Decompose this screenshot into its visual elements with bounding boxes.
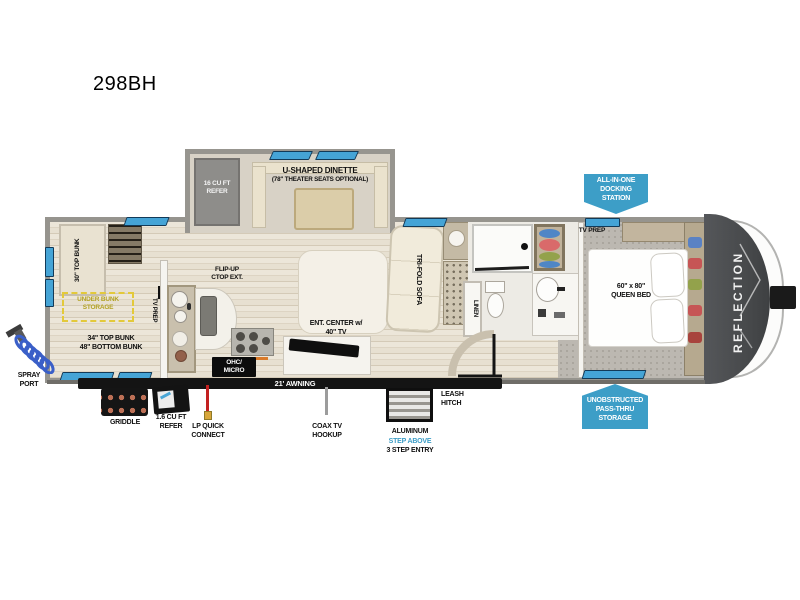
spray-port-icon bbox=[4, 320, 60, 374]
lamp-icon bbox=[448, 230, 465, 247]
clothes-icon bbox=[688, 279, 702, 290]
sink-icon bbox=[171, 291, 188, 308]
vanity-accessory-icon bbox=[538, 309, 546, 317]
lp-connect-icon bbox=[206, 385, 209, 414]
label-flip-up: FLIP-UP CTOP EXT. bbox=[194, 266, 260, 282]
label-dinette: U-SHAPED DINETTE bbox=[246, 166, 394, 176]
window-icon bbox=[45, 279, 54, 307]
clothes-icon bbox=[688, 258, 702, 269]
burner-icon bbox=[236, 332, 245, 341]
lp-connect-tip-icon bbox=[204, 411, 212, 420]
floorplan-title: 298BH bbox=[93, 72, 183, 97]
bowl-icon bbox=[175, 350, 187, 362]
label-queen-bed: 60" x 80" QUEEN BED bbox=[592, 283, 670, 301]
sink-icon bbox=[536, 277, 559, 302]
dinette-table bbox=[294, 188, 354, 230]
label-steps-line2: STEP ABOVE bbox=[374, 437, 446, 447]
coax-line-icon bbox=[325, 387, 328, 415]
clothes-icon bbox=[539, 252, 560, 261]
reflection-logo: REFLECTION bbox=[731, 236, 746, 368]
toilet-icon bbox=[487, 293, 504, 318]
entry-steps-icon bbox=[386, 388, 433, 422]
label-tv-prep-bedroom: TV PREP bbox=[574, 227, 610, 235]
label-steps-line3: 3 STEP ENTRY bbox=[374, 446, 446, 456]
clothes-icon bbox=[539, 239, 560, 251]
toilet-icon bbox=[485, 281, 505, 293]
vanity-accessory-icon bbox=[554, 312, 565, 318]
label-dinette-optional: (78" THEATER SEATS OPTIONAL) bbox=[246, 176, 394, 184]
clothes-icon bbox=[688, 237, 702, 248]
label-coax: COAX TV HOOKUP bbox=[299, 423, 355, 441]
burner-icon bbox=[236, 344, 245, 353]
label-lp-connect: LP QUICK CONNECT bbox=[184, 423, 232, 441]
passthru-storage-badge: UNOBSTRUCTED PASS-THRU STORAGE bbox=[582, 384, 648, 429]
window-icon bbox=[269, 151, 313, 160]
label-ent-center: ENT. CENTER w/ 40" TV bbox=[298, 320, 374, 338]
label-ohc-micro: OHC/ MICRO bbox=[212, 359, 256, 375]
clothes-icon bbox=[688, 332, 702, 343]
burner-icon bbox=[249, 332, 258, 341]
window-icon bbox=[45, 247, 54, 277]
plate-icon bbox=[172, 331, 188, 347]
faucet-icon bbox=[187, 303, 191, 310]
window-icon bbox=[315, 151, 359, 160]
window-icon bbox=[582, 370, 647, 379]
faucet-icon bbox=[557, 287, 565, 291]
bunk-ladder-icon bbox=[108, 224, 142, 264]
clothes-icon bbox=[539, 261, 560, 268]
label-griddle: GRIDDLE bbox=[97, 419, 153, 428]
shower-head-icon bbox=[521, 243, 528, 250]
hitch-pin-icon bbox=[770, 286, 796, 309]
label-leash-hitch: LEASH HITCH bbox=[441, 391, 487, 409]
floorplan-page: 298BH 16 CU FT REFER U-SHAPED DINETTE (7… bbox=[0, 0, 800, 600]
entry-door-icon bbox=[444, 322, 508, 380]
label-spray-port: SPRAY PORT bbox=[2, 372, 56, 390]
window-icon bbox=[402, 218, 447, 227]
label-tv-prep-bunk: TV PREP bbox=[147, 292, 157, 328]
tv-icon bbox=[585, 218, 620, 227]
clothes-icon bbox=[539, 229, 560, 238]
counter-basin-icon bbox=[200, 296, 217, 336]
clothes-icon bbox=[688, 305, 702, 316]
window-icon bbox=[123, 217, 169, 226]
docking-station-badge: ALL-IN-ONE DOCKING STATION bbox=[584, 174, 648, 214]
label-under-bunk: UNDER BUNK STORAGE bbox=[64, 296, 132, 312]
label-refrigerator: 16 CU FT REFER bbox=[194, 180, 240, 196]
sink-icon bbox=[174, 310, 187, 323]
interior-wall bbox=[578, 222, 584, 378]
burner-icon bbox=[249, 344, 258, 353]
label-steps-line1: ALUMINUM bbox=[374, 427, 446, 437]
label-steps: ALUMINUM STEP ABOVE 3 STEP ENTRY bbox=[374, 427, 446, 456]
pillow-icon bbox=[650, 298, 685, 344]
label-bunk3448: 34" TOP BUNK 48" BOTTOM BUNK bbox=[64, 335, 158, 353]
griddle-icon bbox=[101, 388, 148, 416]
burner-icon bbox=[262, 337, 270, 345]
label-sofa: TRI-FOLD SOFA bbox=[406, 238, 422, 322]
label-bunk30: 30" TOP BUNK bbox=[74, 228, 90, 292]
